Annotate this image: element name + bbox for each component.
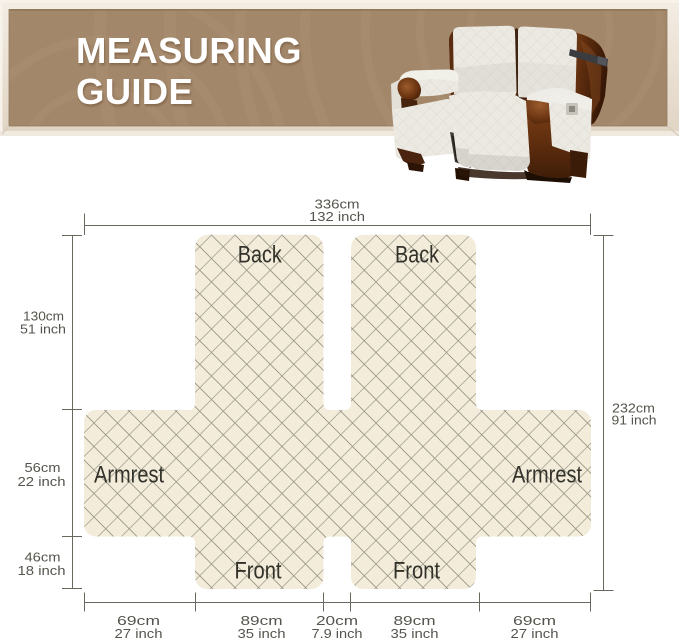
svg-text:27 inch: 27 inch bbox=[511, 626, 559, 640]
svg-text:Back: Back bbox=[238, 243, 282, 269]
svg-text:Front: Front bbox=[393, 558, 440, 584]
svg-text:Back: Back bbox=[395, 243, 439, 269]
svg-text:7.9 inch: 7.9 inch bbox=[312, 626, 363, 640]
svg-text:Armrest: Armrest bbox=[94, 463, 164, 489]
svg-text:51 inch: 51 inch bbox=[20, 322, 66, 337]
svg-text:91 inch: 91 inch bbox=[612, 413, 657, 428]
svg-text:Front: Front bbox=[235, 558, 282, 584]
svg-text:132 inch: 132 inch bbox=[309, 209, 365, 224]
svg-text:35 inch: 35 inch bbox=[238, 626, 286, 640]
svg-text:22 inch: 22 inch bbox=[18, 474, 66, 489]
svg-text:18 inch: 18 inch bbox=[18, 563, 66, 578]
svg-text:Armrest: Armrest bbox=[512, 463, 582, 489]
svg-text:35 inch: 35 inch bbox=[391, 626, 439, 640]
svg-text:27 inch: 27 inch bbox=[115, 626, 163, 640]
